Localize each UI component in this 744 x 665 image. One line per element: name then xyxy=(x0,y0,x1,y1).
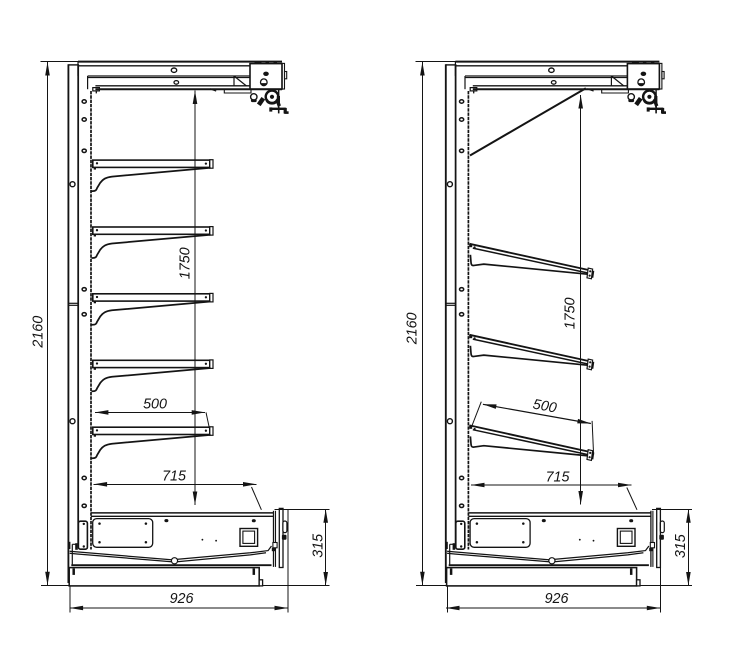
svg-text:1750: 1750 xyxy=(177,247,193,279)
svg-text:2160: 2160 xyxy=(30,316,46,349)
svg-text:926: 926 xyxy=(170,591,194,607)
svg-text:315: 315 xyxy=(310,534,326,558)
svg-text:926: 926 xyxy=(545,591,569,607)
svg-text:315: 315 xyxy=(673,534,689,558)
svg-text:500: 500 xyxy=(143,397,167,413)
svg-text:715: 715 xyxy=(546,469,570,485)
svg-text:715: 715 xyxy=(162,469,186,485)
svg-text:2160: 2160 xyxy=(405,312,421,345)
svg-text:1750: 1750 xyxy=(563,297,579,329)
